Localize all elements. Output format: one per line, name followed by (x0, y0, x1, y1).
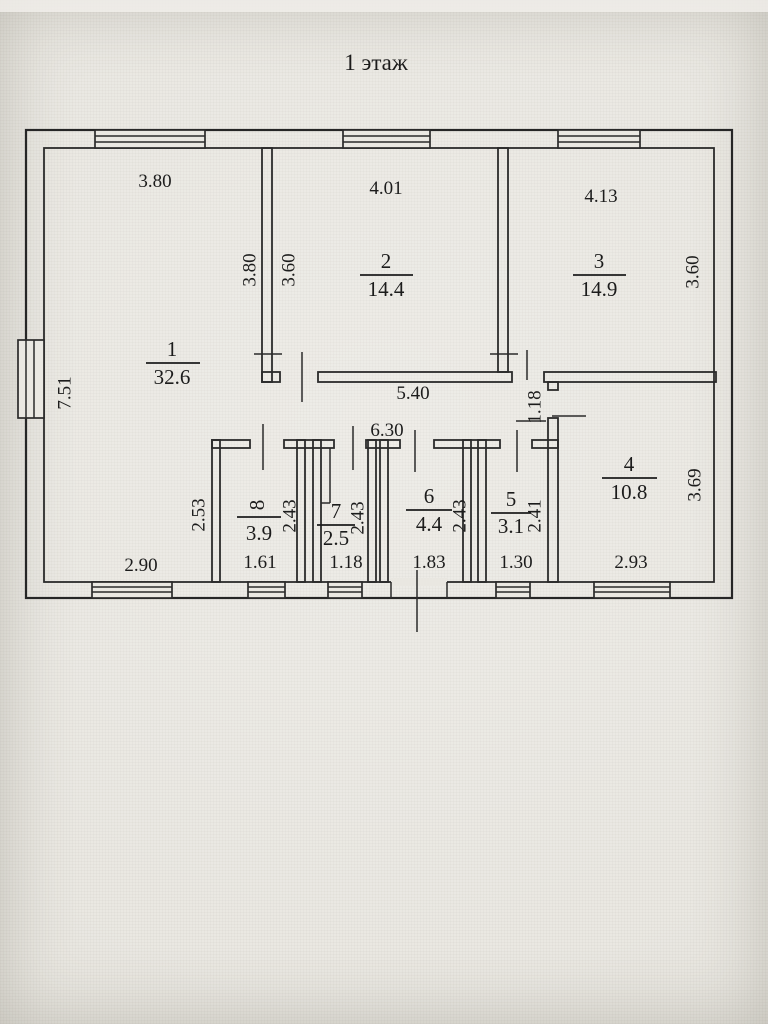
room-8-label: 8 3.9 (237, 500, 281, 545)
dim-top-room2: 4.01 (369, 178, 402, 199)
dim-room8-outer-left: 2.53 (188, 498, 209, 531)
window-top-room2 (343, 130, 430, 148)
dim-room4-right: 3.69 (684, 468, 705, 501)
room-4-number: 4 (624, 452, 635, 476)
dim-room2-left: 3.60 (278, 253, 299, 286)
room-2-label: 2 14.4 (360, 249, 413, 301)
room-8-number: 8 (245, 500, 269, 511)
dim-room6-bottom: 1.83 (412, 552, 445, 573)
dim-room1-right: 3.80 (239, 253, 260, 286)
dim-corridor-width: 6.30 (370, 420, 403, 441)
room-6-area: 4.4 (416, 512, 443, 536)
dim-room7-right: 2.43 (347, 501, 368, 534)
window-top-room3 (558, 130, 640, 148)
room-1-label: 1 32.6 (146, 337, 200, 389)
room-8-area: 3.9 (246, 521, 272, 545)
floor-title: 1 этаж (344, 50, 408, 75)
dim-top-room1: 3.80 (138, 171, 171, 192)
dim-left-outer: 7.51 (54, 376, 75, 409)
room-5-number: 5 (506, 487, 517, 511)
room-3-area: 14.9 (581, 277, 618, 301)
dim-room8-right: 2.43 (279, 499, 300, 532)
room-1-number: 1 (167, 337, 178, 361)
window-bottom-room4 (594, 582, 670, 598)
room-3-number: 3 (594, 249, 605, 273)
walls (26, 130, 732, 598)
window-left-room1 (18, 340, 44, 418)
dim-room4-bottom: 2.93 (614, 552, 647, 573)
dim-passage-room4: 1.18 (524, 390, 545, 423)
dim-room7-bottom: 1.18 (329, 552, 362, 573)
dim-room6-right: 2.43 (449, 499, 470, 532)
room-6-label: 6 4.4 (406, 484, 452, 536)
window-top-room1 (95, 130, 205, 148)
room-3-label: 3 14.9 (573, 249, 626, 301)
room-4-area: 10.8 (611, 480, 648, 504)
dim-top-room3: 4.13 (584, 186, 617, 207)
room-2-area: 14.4 (368, 277, 405, 301)
room-1-area: 32.6 (154, 365, 191, 389)
window-bottom-room8 (248, 582, 285, 598)
dim-room1-bottom: 2.90 (124, 555, 157, 576)
room-4-label: 4 10.8 (602, 452, 657, 504)
room-5-area: 3.1 (498, 514, 524, 538)
window-bottom-room1 (92, 582, 172, 598)
room-2-number: 2 (381, 249, 392, 273)
scanned-floor-plan-page: { "title": "1 этаж", "colors": { "paper"… (0, 0, 768, 1024)
entrance-door-opening (391, 570, 447, 632)
dim-room5-bottom: 1.30 (499, 552, 532, 573)
window-bottom-room7 (328, 582, 362, 598)
room-6-number: 6 (424, 484, 435, 508)
window-bottom-room5 (496, 582, 530, 598)
dim-room3-right: 3.60 (682, 255, 703, 288)
dim-hall-width: 5.40 (396, 383, 429, 404)
dim-room8-bottom: 1.61 (243, 552, 276, 573)
floor-plan-drawing: 1 этаж (0, 0, 768, 1024)
room-7-number: 7 (331, 499, 342, 523)
dim-room5-right: 2.41 (524, 499, 545, 532)
room-7-area: 2.5 (323, 526, 349, 550)
